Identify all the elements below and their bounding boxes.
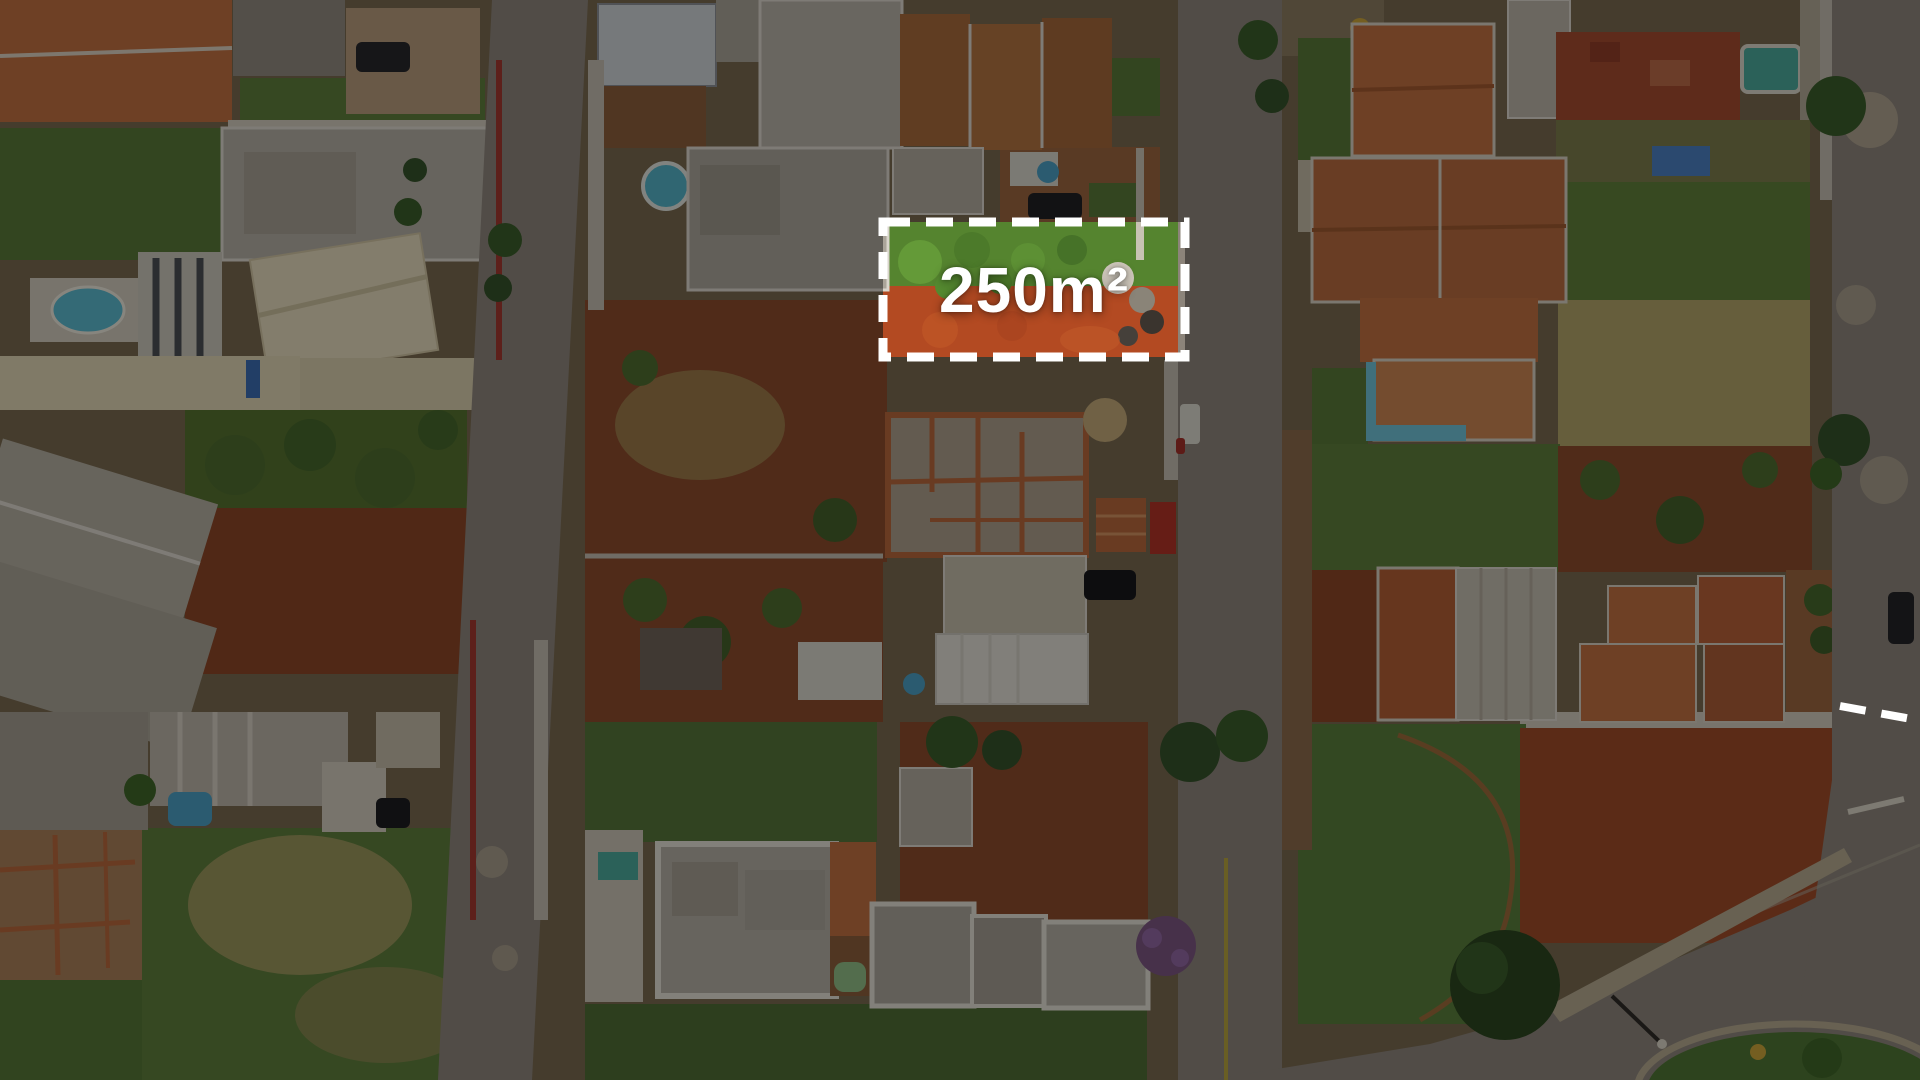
- dim-mask: [0, 0, 1920, 1080]
- annotation-overlay: [0, 0, 1920, 1080]
- highlight-lot-boundary: [883, 222, 1185, 357]
- aerial-photo-frame: 250m²: [0, 0, 1920, 1080]
